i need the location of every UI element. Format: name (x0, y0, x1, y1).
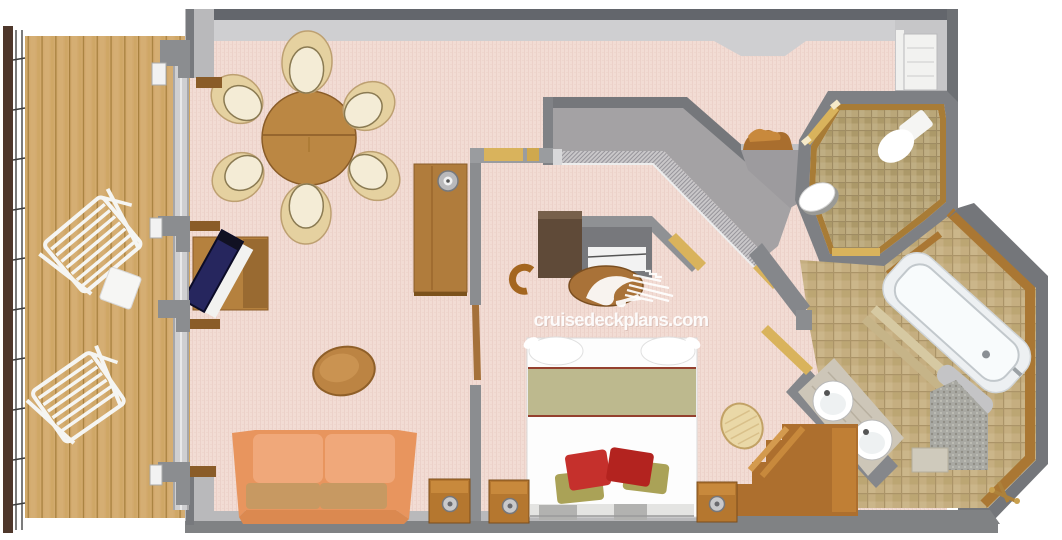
svg-text:cruisedeckplans.com: cruisedeckplans.com (534, 309, 709, 330)
